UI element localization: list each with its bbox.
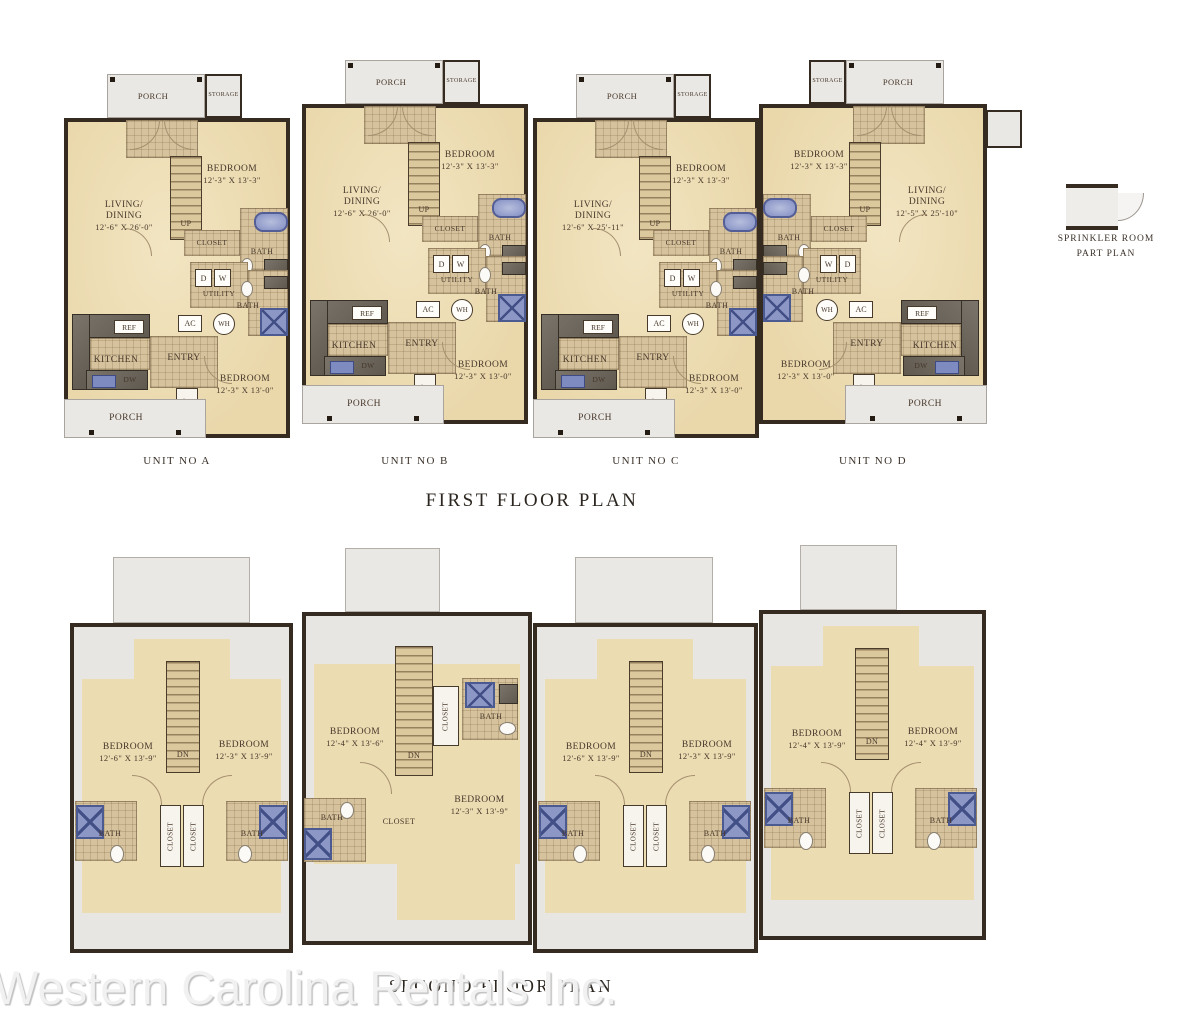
stairs-up-label: UP (639, 220, 671, 228)
bedroom1-name: BEDROOM (414, 151, 526, 161)
dryer-box: D (195, 269, 212, 287)
bath1-label: BATH (767, 234, 811, 242)
dw-label: DW (116, 376, 144, 384)
living-name-line1: LIVING/ (543, 201, 643, 211)
dw-label: DW (585, 376, 613, 384)
bedroom2-dim: 12'-3" X 13'-0" (202, 386, 288, 395)
porch-bottom-label: PORCH (72, 414, 180, 424)
bedroom1-dim: 12'-3" X 13'-3" (176, 176, 288, 185)
bedroom-left-dim: 12'-6" X 13'-9" (76, 754, 180, 763)
porch-top-label: PORCH (578, 92, 666, 101)
washer-box: W (683, 269, 700, 287)
living-name-line1: LIVING/ (877, 187, 977, 197)
unit-label-b: UNIT NO B (302, 455, 528, 467)
toilet (701, 845, 715, 863)
bathtub (254, 212, 288, 232)
bedroom-right-floor (397, 862, 515, 920)
toilet (110, 845, 124, 863)
living-name-line1: LIVING/ (74, 201, 174, 211)
bedroom1-dim: 12'-3" X 13'-3" (645, 176, 757, 185)
closet1-label: CLOSET (422, 225, 478, 233)
bedroom-left-name: BEDROOM (76, 743, 180, 753)
porch-top-label: PORCH (347, 78, 435, 87)
kitchen-label: KITCHEN (314, 342, 394, 352)
washer-box: W (214, 269, 231, 287)
bedroom-left-dim: 12'-4" X 13'-9" (765, 741, 869, 750)
shower (729, 308, 757, 336)
living-dim: 12'-5" X 25'-10" (877, 209, 977, 218)
ref-box: REF (907, 306, 937, 320)
porch-bottom-label: PORCH (871, 400, 979, 410)
unit-plan-b: PORCHSTORAGEUPBEDROOM12'-3" X 13'-3"LIVI… (302, 104, 528, 437)
ref-box: REF (352, 306, 382, 320)
watermark: Western Carolina Rentals Inc. (0, 960, 1194, 1015)
kitchen-label: KITCHEN (895, 342, 975, 352)
vanity (499, 684, 518, 704)
shower (304, 828, 332, 860)
closet1-label: CLOSET (811, 225, 867, 233)
storage-label: STORAGE (204, 92, 243, 98)
bedroom-left-dim: 12'-6" X 13'-9" (539, 754, 643, 763)
ref-box: REF (114, 320, 144, 334)
bedroom-right-name: BEDROOM (198, 741, 290, 751)
dormer-box (575, 557, 713, 623)
toilet (927, 832, 941, 850)
bedroom-right-name: BEDROOM (661, 741, 753, 751)
kitchen-label: KITCHEN (545, 356, 625, 366)
dishwasher (330, 361, 354, 374)
bedroom-right-name: BEDROOM (887, 728, 979, 738)
storage-label: STORAGE (442, 78, 481, 84)
dishwasher (935, 361, 959, 374)
stairs-down-label: DN (395, 752, 433, 760)
bedroom1-name: BEDROOM (763, 151, 875, 161)
sprinkler-label-line2: PART PLAN (1036, 249, 1176, 259)
shower (260, 308, 288, 336)
bedroom-right-dim: 12'-4" X 13'-9" (887, 739, 979, 748)
porch-top-label: PORCH (109, 92, 197, 101)
toilet (479, 267, 491, 283)
side-extension (986, 110, 1022, 148)
toilet (340, 802, 354, 819)
bedroom1-name: BEDROOM (176, 165, 288, 175)
wh-circle: WH (816, 299, 838, 321)
wh-circle: WH (682, 313, 704, 335)
dormer-box (345, 548, 440, 612)
closet1-label: CLOSET (653, 239, 709, 247)
bedroom-left-name: BEDROOM (765, 730, 869, 740)
dishwasher (561, 375, 585, 388)
bedroom-right-dim: 12'-3" X 13'-9" (432, 807, 527, 816)
bedroom1-dim: 12'-3" X 13'-3" (763, 162, 875, 171)
vanity (733, 276, 757, 289)
dishwasher (92, 375, 116, 388)
toilet (573, 845, 587, 863)
closet-right-label: CLOSET (190, 809, 197, 863)
kitchen-label: KITCHEN (76, 356, 156, 366)
dormer-box (113, 557, 250, 623)
living-name-line1: LIVING/ (312, 187, 412, 197)
washer-box: W (452, 255, 469, 273)
shower (498, 294, 526, 322)
first-floor-title: FIRST FLOOR PLAN (332, 490, 732, 512)
bath1-label: BATH (709, 248, 753, 256)
bedroom-left-name: BEDROOM (304, 728, 406, 738)
bath1-label: BATH (478, 234, 522, 242)
ac-box: AC (647, 315, 671, 332)
dryer-box: D (433, 255, 450, 273)
closet-right-label: CLOSET (879, 796, 886, 850)
vanity (502, 262, 526, 275)
dw-label: DW (907, 362, 935, 370)
vanity (763, 262, 787, 275)
closet-center-label: CLOSET (368, 818, 430, 826)
dryer-box: D (664, 269, 681, 287)
bedroom1-name: BEDROOM (645, 165, 757, 175)
bath-right-label: BATH (919, 817, 963, 825)
bath1-label: BATH (240, 248, 284, 256)
shower (465, 682, 495, 708)
living-name-line2: DINING (312, 198, 412, 208)
sprinkler-label-line1: SPRINKLER ROOM (1036, 234, 1176, 244)
bedroom-right-name: BEDROOM (432, 796, 527, 806)
porch-top-label: PORCH (854, 78, 942, 87)
unit-plan-c: DNBEDROOM12'-6" X 13'-9"BEDROOM12'-3" X … (533, 623, 758, 956)
wh-circle: WH (451, 299, 473, 321)
toilet (241, 281, 253, 297)
dw-label: DW (354, 362, 382, 370)
bedroom2-dim: 12'-3" X 13'-0" (671, 386, 757, 395)
bedroom-left-dim: 12'-4" X 13'-6" (304, 739, 406, 748)
washer-box: W (820, 255, 837, 273)
bath-left-label: BATH (777, 817, 821, 825)
bath-right-label: BATH (230, 830, 274, 838)
unit-plan-a: DNBEDROOM12'-6" X 13'-9"BEDROOM12'-3" X … (70, 623, 293, 956)
closet-right-label: CLOSET (653, 809, 660, 863)
closet-left-label: CLOSET (630, 809, 637, 863)
stairs-up-label: UP (170, 220, 202, 228)
closet1-label: CLOSET (184, 239, 240, 247)
bedroom-right-dim: 12'-3" X 13'-9" (198, 752, 290, 761)
ref-box: REF (583, 320, 613, 334)
stairs-up-label: UP (408, 206, 440, 214)
sprinkler-room-shape (1066, 184, 1118, 230)
porch-bottom-label: PORCH (541, 414, 649, 424)
living-name-line2: DINING (74, 212, 174, 222)
porch-bottom-label: PORCH (310, 400, 418, 410)
toilet (799, 832, 813, 850)
ac-box: AC (178, 315, 202, 332)
closet-left-label: CLOSET (856, 796, 863, 850)
unit-plan-d: DNBEDROOM12'-4" X 13'-9"BEDROOM12'-4" X … (759, 610, 986, 943)
unit-plan-b: DNBEDROOM12'-4" X 13'-6"CLOSETBATHBEDROO… (302, 612, 532, 945)
storage-label: STORAGE (808, 78, 847, 84)
unit-plan-d: PORCHSTORAGEUPBEDROOM12'-3" X 13'-3"LIVI… (759, 104, 987, 437)
storage-label: STORAGE (673, 92, 712, 98)
bedroom2-dim: 12'-3" X 13'-0" (763, 372, 849, 381)
bath-left-label: BATH (88, 830, 132, 838)
vanity (264, 276, 288, 289)
toilet (499, 722, 516, 735)
unit-plan-a: PORCHSTORAGEUPBEDROOM12'-3" X 13'-3"LIVI… (64, 118, 290, 451)
bedroom2-dim: 12'-3" X 13'-0" (440, 372, 526, 381)
bathtub (763, 198, 797, 218)
dormer-box (800, 545, 897, 610)
closet-upper-label: CLOSET (443, 690, 450, 742)
sprinkler-door-arc (1118, 193, 1144, 221)
unit-label-a: UNIT NO A (64, 455, 290, 467)
floor-plan-sheet: PORCHSTORAGEUPBEDROOM12'-3" X 13'-3"LIVI… (0, 0, 1200, 1036)
living-name-line2: DINING (543, 212, 643, 222)
bedroom-right-dim: 12'-3" X 13'-9" (661, 752, 753, 761)
unit-label-d: UNIT NO D (759, 455, 987, 467)
shower (763, 294, 791, 322)
living-name-line2: DINING (877, 198, 977, 208)
wh-circle: WH (213, 313, 235, 335)
bedroom1-dim: 12'-3" X 13'-3" (414, 162, 526, 171)
toilet (710, 281, 722, 297)
toilet (238, 845, 252, 863)
bath-right-label: BATH (693, 830, 737, 838)
dryer-box: D (839, 255, 856, 273)
toilet (798, 267, 810, 283)
unit-label-c: UNIT NO C (533, 455, 759, 467)
bath-left-label: BATH (551, 830, 595, 838)
bath-upper-label: BATH (468, 713, 514, 721)
unit-plan-c: PORCHSTORAGEUPBEDROOM12'-3" X 13'-3"LIVI… (533, 118, 759, 451)
closet-left-label: CLOSET (167, 809, 174, 863)
ac-box: AC (416, 301, 440, 318)
bathtub (723, 212, 757, 232)
bathtub (492, 198, 526, 218)
ac-box: AC (849, 301, 873, 318)
bedroom-left-name: BEDROOM (539, 743, 643, 753)
